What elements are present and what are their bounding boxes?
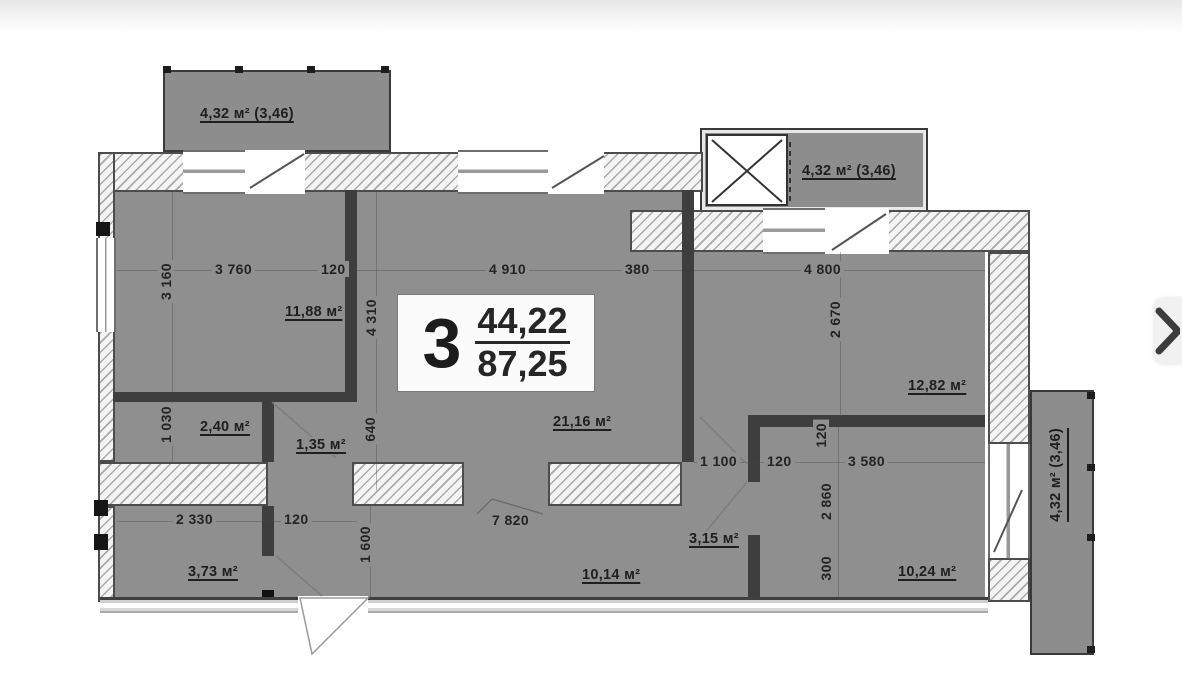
wall-divider-left	[345, 190, 357, 394]
floorplan-drawing: 4,32 м² (3,46) 4,32 м² (3,46) 4,32 м² (3…	[0, 0, 1182, 700]
balcony-top-left-label: 4,32 м² (3,46)	[200, 106, 294, 122]
wall-hall-right-b	[748, 535, 760, 598]
dim-4910: 4 910	[486, 261, 529, 277]
balcony-tick	[307, 66, 315, 73]
window-left	[96, 238, 116, 332]
unit-number: 3	[422, 312, 461, 375]
dim-640: 640	[362, 414, 378, 445]
dim-line	[376, 190, 377, 490]
balcony-tick	[1087, 534, 1095, 541]
dim-380: 380	[622, 261, 653, 277]
wall-bath-right	[262, 506, 274, 556]
balcony-hatch-box	[706, 134, 788, 206]
wall-left-c	[98, 506, 115, 602]
dim-2330: 2 330	[173, 511, 216, 527]
area-wc: 2,40 м²	[198, 419, 252, 437]
area-room-top-right: 12,82 м²	[906, 378, 968, 396]
area-hall-small: 1,35 м²	[294, 437, 348, 455]
dim-4310: 4 310	[363, 296, 379, 339]
wall-hall-right-a	[748, 427, 760, 482]
balcony-right-label: 4,32 м² (3,46)	[1048, 428, 1064, 522]
window-top-1	[183, 150, 245, 194]
balcony-door-top-right	[825, 208, 889, 254]
entrance-opening	[298, 596, 368, 614]
door-top-2	[548, 150, 604, 194]
wall-right-lower	[988, 558, 1030, 602]
balcony-tick	[381, 66, 389, 73]
left-wall-mark	[96, 222, 110, 236]
dim-120-b: 120	[764, 453, 795, 469]
left-wall-mark	[94, 534, 108, 550]
wall-wc-right	[262, 402, 274, 462]
area-hall-right: 3,15 м²	[687, 531, 741, 549]
window-top-right	[763, 208, 825, 254]
dim-1030: 1 030	[158, 403, 174, 446]
unit-info-card: 3 44,22 87,25	[398, 295, 594, 391]
dim-2670: 2 670	[827, 298, 843, 341]
balcony-top-right-label: 4,32 м² (3,46)	[802, 163, 896, 179]
area-bathroom: 3,73 м²	[186, 564, 240, 582]
chevron-right-icon	[1154, 301, 1180, 361]
dim-3760: 3 760	[212, 261, 255, 277]
wall-room4-top	[748, 415, 985, 427]
wall-stub-b	[548, 462, 682, 506]
dim-1100: 1 100	[697, 453, 740, 469]
unit-areas-fraction: 44,22 87,25	[475, 302, 569, 383]
balcony-door-top-left	[245, 150, 305, 194]
window-right-balcony	[988, 444, 1030, 558]
left-wall-mark	[94, 500, 108, 516]
floorplan-page: 4,32 м² (3,46) 4,32 м² (3,46) 4,32 м² (3…	[0, 0, 1182, 700]
dim-line	[117, 521, 357, 522]
wall-divider-right	[682, 190, 694, 462]
dim-1600: 1 600	[357, 523, 373, 566]
wall-bottom	[100, 597, 988, 613]
dim-120-a: 120	[318, 261, 349, 277]
area-room-top-left: 11,88 м²	[283, 304, 344, 322]
balcony-tick	[1087, 464, 1095, 471]
dim-4800: 4 800	[801, 261, 844, 277]
wall-under-room1	[113, 392, 357, 402]
unit-total-area: 87,25	[477, 344, 567, 384]
area-corridor: 10,14 м²	[580, 567, 642, 585]
balcony-tick	[163, 66, 171, 73]
balcony-tick	[1087, 392, 1095, 399]
wall-band-left	[98, 462, 268, 506]
area-room-bottom-right: 10,24 м²	[896, 564, 958, 582]
next-button[interactable]	[1154, 298, 1182, 364]
window-top-2	[458, 150, 548, 194]
dim-2860: 2 860	[818, 480, 834, 523]
dim-300: 300	[818, 553, 834, 584]
balcony-tick	[235, 66, 243, 73]
dim-3580: 3 580	[845, 453, 888, 469]
dim-7820: 7 820	[489, 512, 532, 528]
balcony-tick	[1087, 646, 1095, 653]
wall-stub-a	[352, 462, 464, 506]
dim-120-v: 120	[813, 420, 829, 451]
corridor-opening-fill	[462, 486, 548, 510]
dim-3160: 3 160	[158, 260, 174, 303]
area-living: 21,16 м²	[551, 414, 613, 432]
unit-living-area: 44,22	[475, 302, 569, 344]
room-top-left-fill	[115, 192, 345, 397]
wall-right-upper	[988, 252, 1030, 444]
dim-120-c: 120	[281, 511, 312, 527]
dim-line	[838, 427, 839, 598]
